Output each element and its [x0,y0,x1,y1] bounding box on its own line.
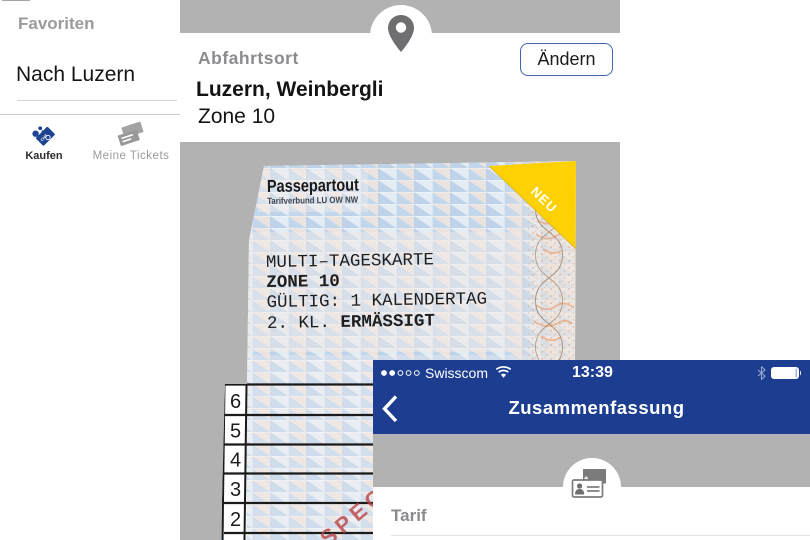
svg-text:6: 6 [230,391,241,413]
svg-text:2: 2 [230,509,241,531]
svg-text:3: 3 [230,479,241,501]
svg-text:ZONE 10: ZONE 10 [266,272,340,293]
svg-text:5: 5 [230,420,241,442]
svg-text:GÜLTIG: 1 KALENDERTAG: GÜLTIG: 1 KALENDERTAG [266,289,487,313]
svg-text:2. KL. ERMÄSSIGT: 2. KL. ERMÄSSIGT [267,310,435,334]
svg-text:MULTI–TAGESKARTE: MULTI–TAGESKARTE [266,250,434,273]
svg-text:Tarifverbund LU OW NW: Tarifverbund LU OW NW [267,195,359,206]
svg-text:4: 4 [230,449,241,471]
svg-text:Passepartout: Passepartout [267,175,359,196]
